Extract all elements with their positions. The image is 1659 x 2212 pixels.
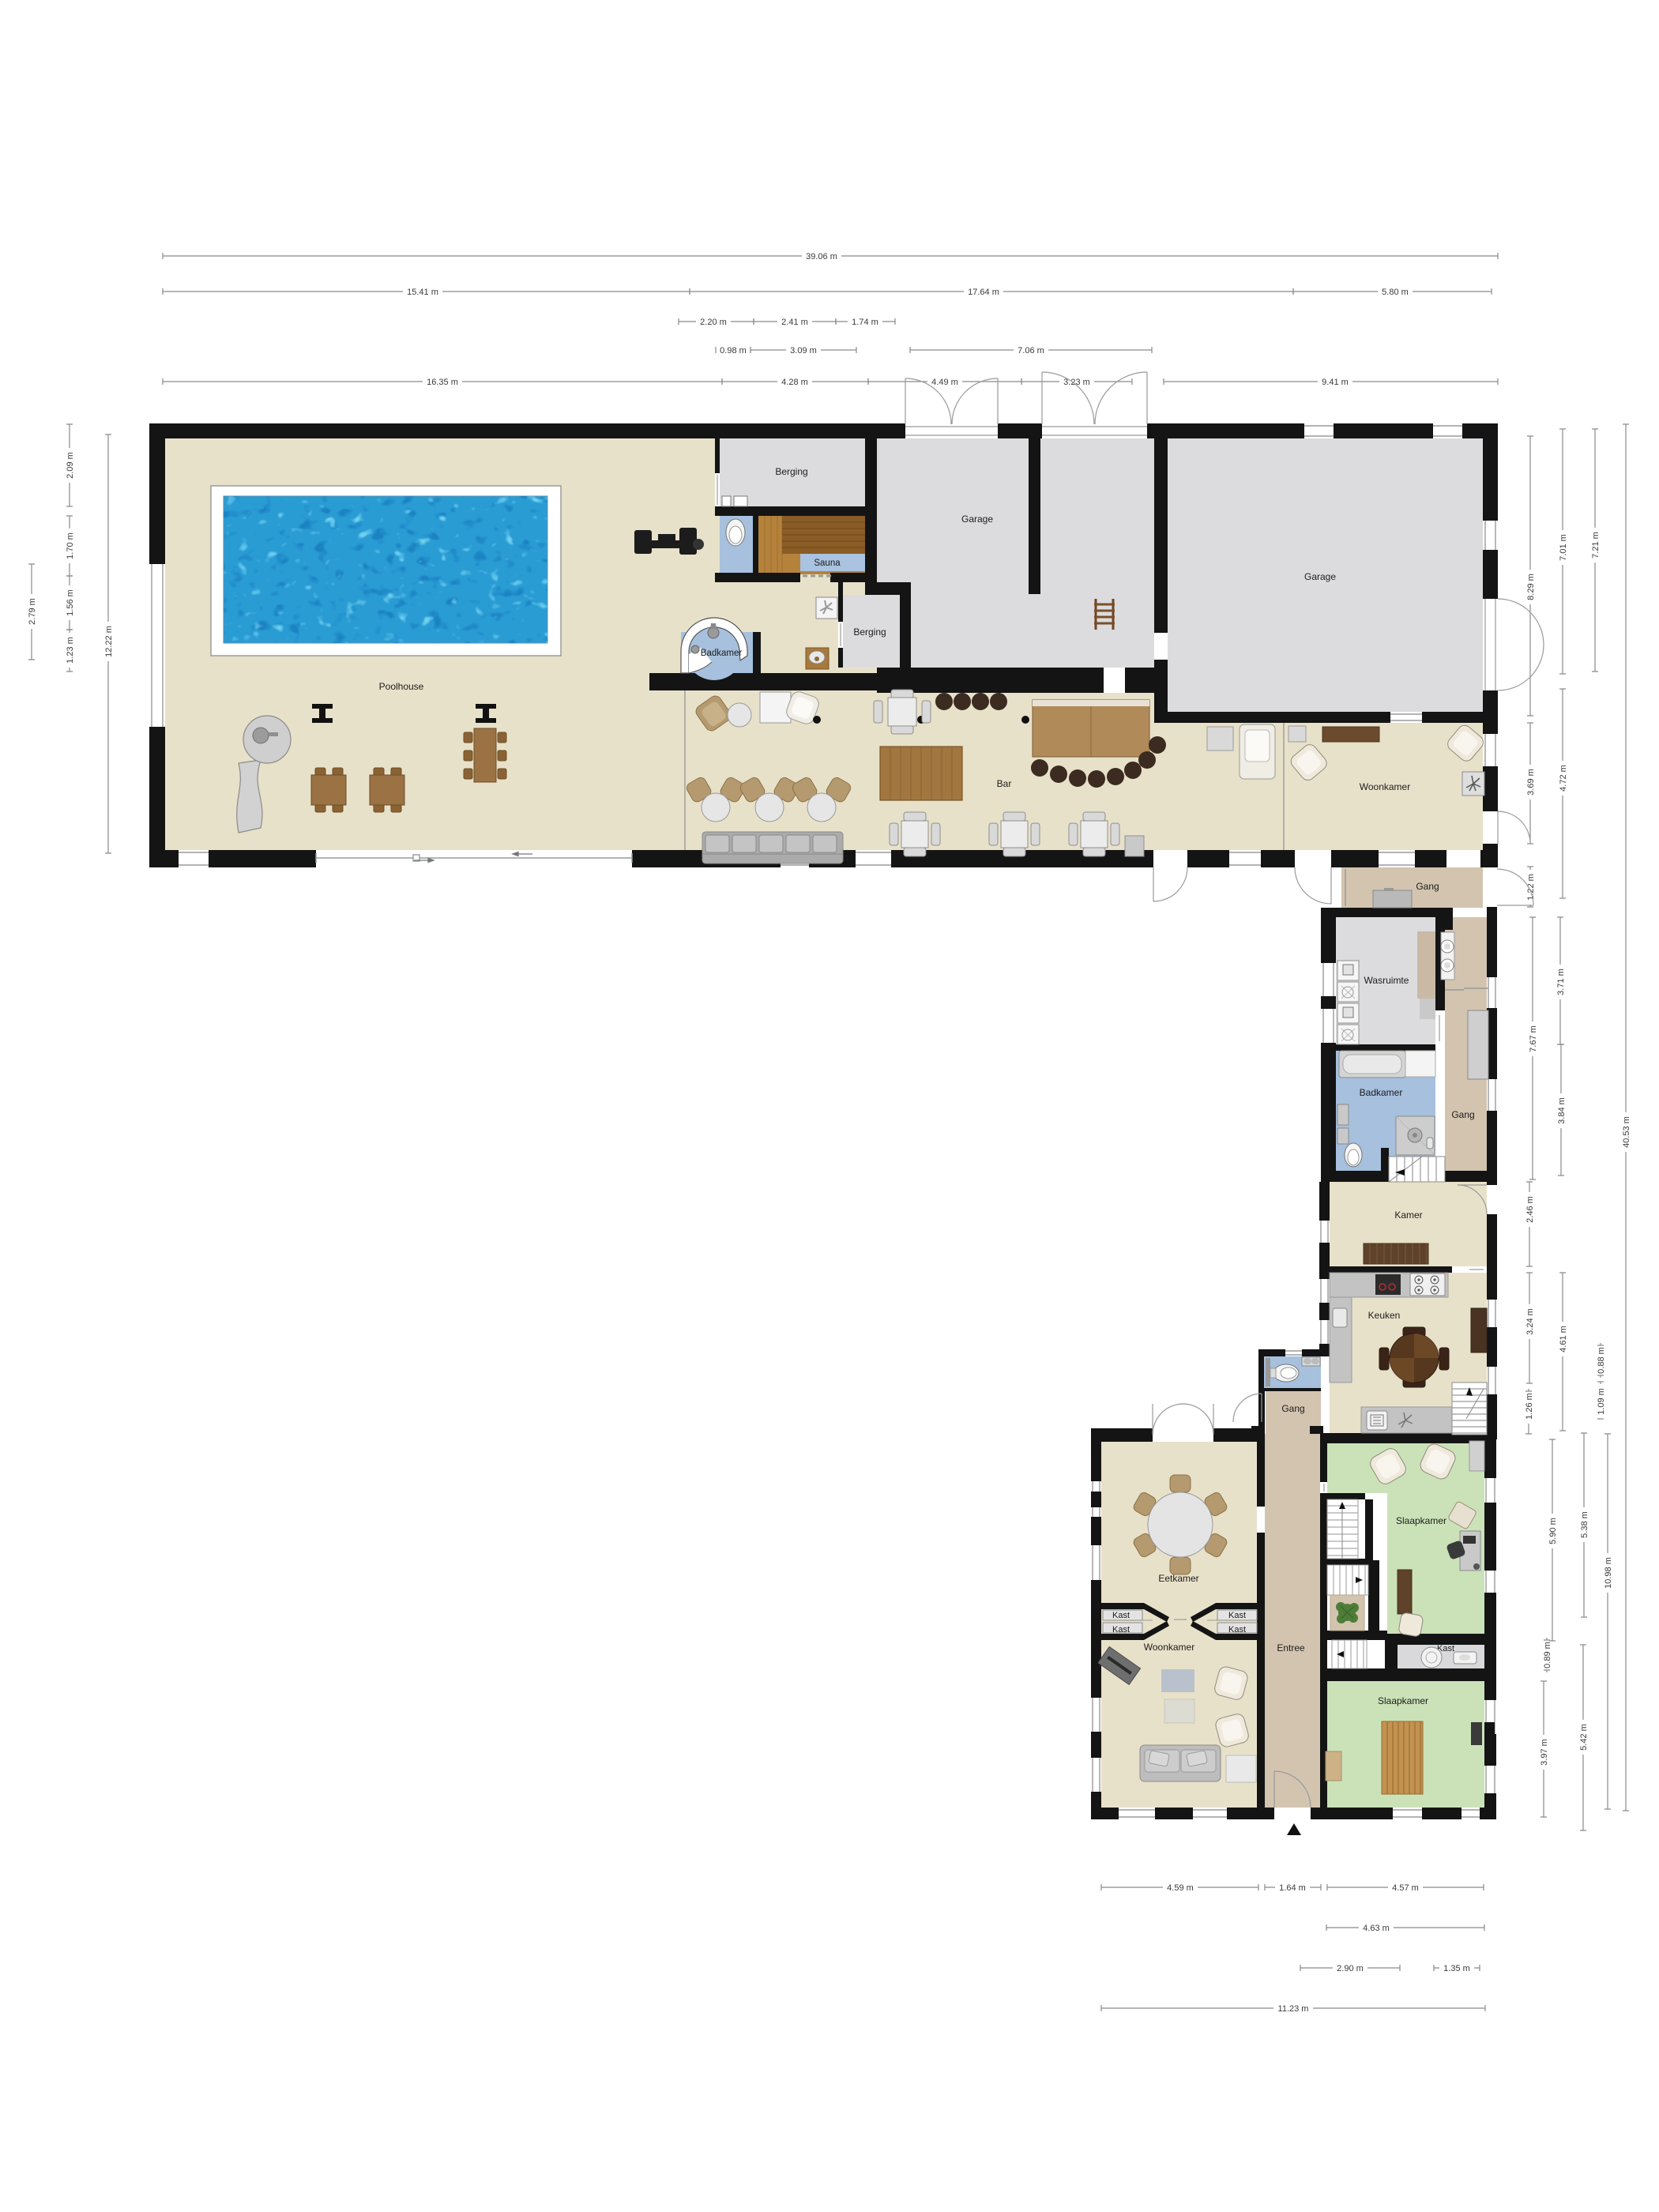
svg-text:2.79 m: 2.79 m bbox=[28, 598, 37, 625]
svg-text:2.41 m: 2.41 m bbox=[781, 318, 808, 327]
svg-text:39.06 m: 39.06 m bbox=[806, 252, 837, 261]
svg-text:Garage: Garage bbox=[1304, 571, 1336, 582]
svg-text:12.22 m: 12.22 m bbox=[104, 626, 114, 657]
svg-text:Badkamer: Badkamer bbox=[1360, 1087, 1403, 1098]
svg-text:8.29 m: 8.29 m bbox=[1526, 574, 1536, 600]
svg-text:11.23 m: 11.23 m bbox=[1278, 2004, 1309, 2014]
svg-text:4.28 m: 4.28 m bbox=[781, 378, 808, 387]
svg-text:Garage: Garage bbox=[961, 513, 993, 525]
svg-text:9.41 m: 9.41 m bbox=[1322, 378, 1349, 387]
svg-text:Eetkamer: Eetkamer bbox=[1158, 1573, 1198, 1584]
svg-text:1.70 m: 1.70 m bbox=[66, 532, 75, 559]
svg-text:4.57 m: 4.57 m bbox=[1392, 1883, 1419, 1893]
svg-text:Gang: Gang bbox=[1281, 1403, 1304, 1414]
svg-text:Woonkamer: Woonkamer bbox=[1360, 781, 1410, 792]
svg-text:4.59 m: 4.59 m bbox=[1167, 1883, 1194, 1893]
svg-text:3.97 m: 3.97 m bbox=[1540, 1739, 1549, 1766]
svg-text:3.71 m: 3.71 m bbox=[1556, 969, 1566, 995]
svg-text:1.26 m: 1.26 m bbox=[1525, 1393, 1534, 1420]
svg-text:10.98 m: 10.98 m bbox=[1604, 1557, 1613, 1589]
svg-text:16.35 m: 16.35 m bbox=[427, 378, 458, 387]
svg-text:Kast: Kast bbox=[1228, 1611, 1246, 1620]
svg-text:Gang: Gang bbox=[1416, 881, 1439, 892]
svg-text:Berging: Berging bbox=[775, 466, 807, 477]
svg-text:5.42 m: 5.42 m bbox=[1579, 1724, 1589, 1751]
svg-text:15.41 m: 15.41 m bbox=[407, 288, 438, 297]
svg-text:Kast: Kast bbox=[1112, 1611, 1130, 1620]
svg-text:4.49 m: 4.49 m bbox=[931, 378, 958, 387]
svg-text:5.80 m: 5.80 m bbox=[1382, 288, 1409, 297]
svg-text:7.67 m: 7.67 m bbox=[1529, 1025, 1538, 1052]
svg-text:Kamer: Kamer bbox=[1394, 1209, 1422, 1221]
svg-text:2.90 m: 2.90 m bbox=[1337, 1964, 1364, 1973]
svg-text:0.98 m: 0.98 m bbox=[720, 346, 747, 355]
svg-text:1.23 m: 1.23 m bbox=[66, 637, 75, 664]
svg-text:7.06 m: 7.06 m bbox=[1018, 346, 1044, 355]
svg-text:0.89 m: 0.89 m bbox=[1543, 1642, 1552, 1668]
svg-text:2.20 m: 2.20 m bbox=[700, 318, 727, 327]
svg-text:Poolhouse: Poolhouse bbox=[379, 681, 424, 692]
svg-text:Woonkamer: Woonkamer bbox=[1144, 1642, 1194, 1653]
svg-text:7.21 m: 7.21 m bbox=[1591, 532, 1601, 559]
svg-text:3.84 m: 3.84 m bbox=[1557, 1097, 1567, 1124]
svg-text:Sauna: Sauna bbox=[814, 559, 841, 568]
svg-text:1.74 m: 1.74 m bbox=[852, 318, 878, 327]
svg-text:Keuken: Keuken bbox=[1368, 1310, 1401, 1321]
svg-text:1.35 m: 1.35 m bbox=[1443, 1964, 1470, 1973]
svg-text:Gang: Gang bbox=[1451, 1109, 1474, 1120]
svg-text:1.56 m: 1.56 m bbox=[66, 589, 75, 616]
svg-text:Kast: Kast bbox=[1112, 1625, 1130, 1635]
svg-text:3.09 m: 3.09 m bbox=[790, 346, 817, 355]
svg-text:5.90 m: 5.90 m bbox=[1548, 1518, 1558, 1544]
svg-text:17.64 m: 17.64 m bbox=[968, 288, 999, 297]
svg-text:1.22 m: 1.22 m bbox=[1526, 874, 1536, 901]
svg-text:7.01 m: 7.01 m bbox=[1559, 534, 1568, 561]
svg-text:Slaapkamer: Slaapkamer bbox=[1378, 1695, 1428, 1706]
svg-text:3.69 m: 3.69 m bbox=[1526, 769, 1536, 796]
svg-text:Wasruimte: Wasruimte bbox=[1364, 975, 1409, 986]
svg-text:40.53 m: 40.53 m bbox=[1622, 1116, 1631, 1148]
svg-text:Slaapkamer: Slaapkamer bbox=[1396, 1515, 1446, 1526]
svg-text:1.64 m: 1.64 m bbox=[1279, 1883, 1306, 1893]
svg-text:2.46 m: 2.46 m bbox=[1525, 1196, 1535, 1223]
svg-text:2.09 m: 2.09 m bbox=[66, 452, 75, 479]
svg-text:4.72 m: 4.72 m bbox=[1559, 765, 1568, 792]
svg-text:Entree: Entree bbox=[1277, 1642, 1305, 1653]
svg-text:Badkamer: Badkamer bbox=[701, 649, 743, 658]
svg-text:5.38 m: 5.38 m bbox=[1580, 1511, 1589, 1538]
svg-text:Bar: Bar bbox=[997, 778, 1012, 789]
svg-text:4.63 m: 4.63 m bbox=[1363, 1924, 1390, 1933]
svg-text:0.88 m: 0.88 m bbox=[1597, 1347, 1606, 1374]
svg-text:1.09 m: 1.09 m bbox=[1597, 1388, 1606, 1415]
svg-text:Kast: Kast bbox=[1228, 1625, 1246, 1635]
svg-text:4.61 m: 4.61 m bbox=[1559, 1326, 1568, 1352]
svg-text:Berging: Berging bbox=[853, 626, 886, 638]
svg-text:3.24 m: 3.24 m bbox=[1525, 1308, 1535, 1335]
